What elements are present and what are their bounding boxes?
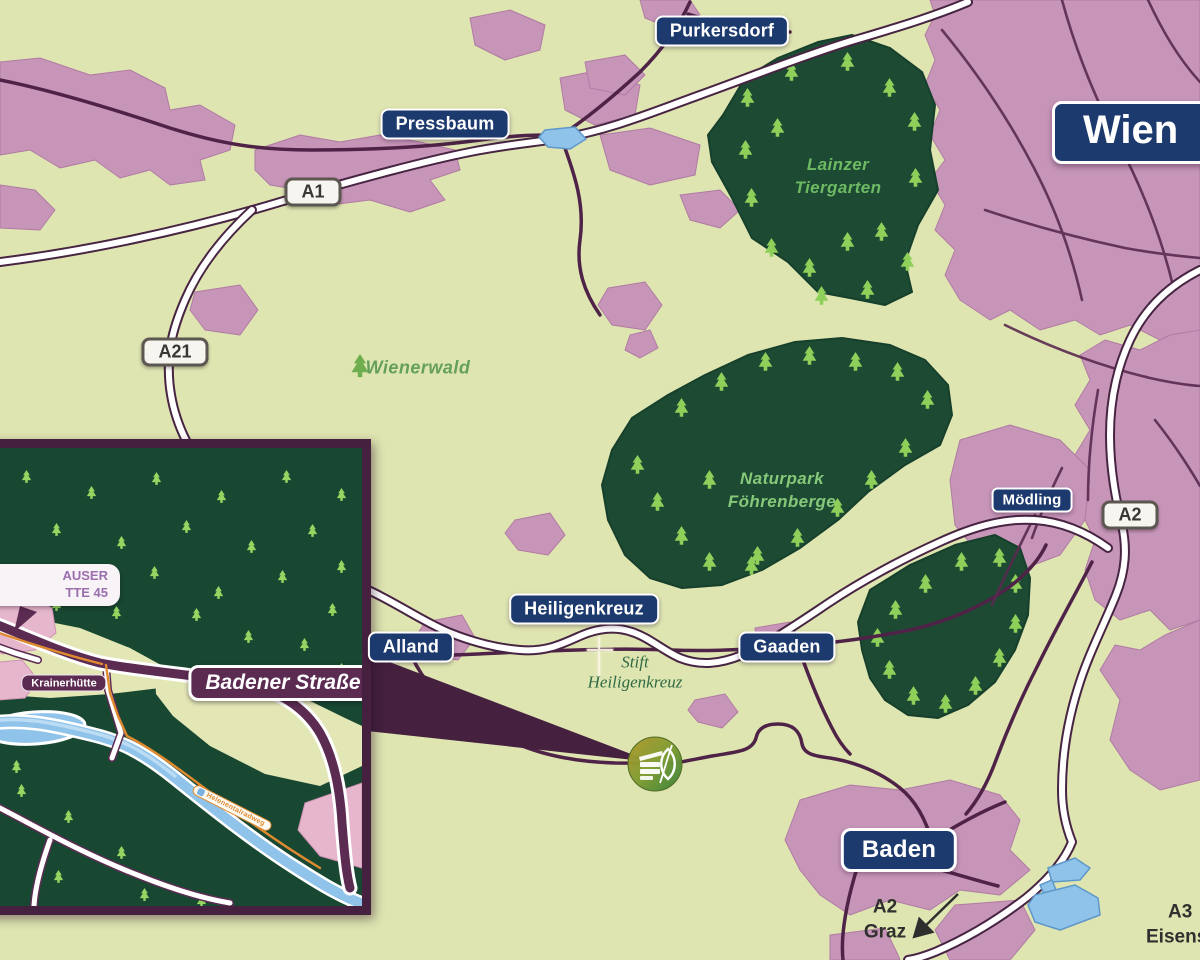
region-label-naturpark-foehrenberge: Naturpark Föhrenberge xyxy=(728,468,836,514)
detail-inset-map: AUSER TTE 45 Krainerhütte Badener Straße… xyxy=(0,439,371,915)
inset-address-label: AUSER TTE 45 xyxy=(0,564,120,606)
inset-hotel-label-krainerhuette: Krainerhütte xyxy=(21,675,106,692)
town-label-gaaden: Gaaden xyxy=(738,632,835,663)
inset-street-sign-badener-strasse: Badener Straße xyxy=(188,665,371,701)
map-canvas: Purkersdorf Pressbaum Mödling Heiligenkr… xyxy=(0,0,1200,960)
town-label-pressbaum: Pressbaum xyxy=(381,109,510,140)
direction-label-a3: A3 xyxy=(1168,901,1192,926)
motorway-shield-a21: A21 xyxy=(141,338,208,367)
town-label-alland: Alland xyxy=(368,632,454,663)
hotel-logo-marker[interactable] xyxy=(628,737,682,791)
town-label-moedling: Mödling xyxy=(992,488,1073,513)
region-label-wienerwald: Wienerwald xyxy=(366,358,471,379)
poi-label-stift-heiligenkreuz: Stift Heiligenkreuz xyxy=(588,653,683,694)
direction-label-graz: A2 Graz xyxy=(864,895,906,944)
wienerwald-text: Wienerwald xyxy=(366,358,471,379)
town-label-purkersdorf: Purkersdorf xyxy=(655,16,789,47)
region-label-lainzer-tiergarten: Lainzer Tiergarten xyxy=(795,154,882,200)
route-start-cap xyxy=(196,787,205,796)
motorway-shield-a2: A2 xyxy=(1101,501,1158,530)
town-label-baden: Baden xyxy=(841,828,957,872)
motorway-shield-a1: A1 xyxy=(284,178,341,207)
town-label-heiligenkreuz: Heiligenkreuz xyxy=(509,594,659,625)
direction-label-eisenstadt: Eisenstadt xyxy=(1146,926,1200,951)
city-sign-wien: Wien xyxy=(1052,101,1200,164)
